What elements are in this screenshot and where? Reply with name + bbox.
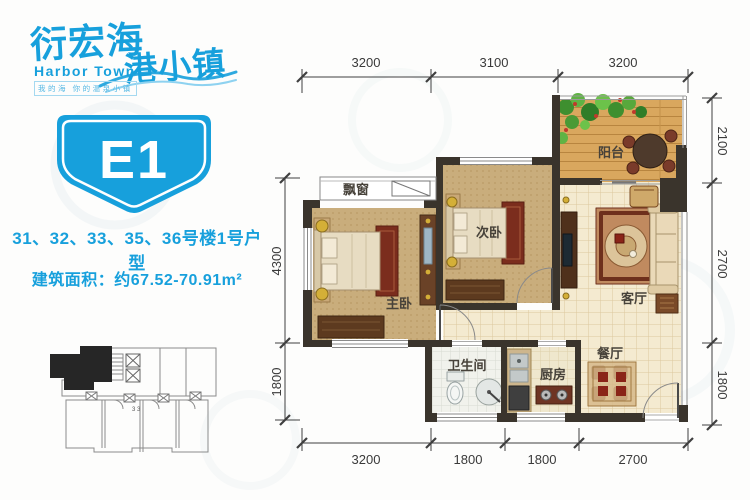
dining-set [588,362,636,406]
armchair [630,186,658,207]
dining-label: 餐厅 [596,346,623,361]
bathroom-label: 卫生间 [447,358,486,373]
dimension-top: 3200 3100 3200 [297,55,693,93]
dim-bottom-2: 1800 [454,452,483,467]
keyplan-highlighted-unit [50,346,112,390]
dim-left-1: 4300 [269,247,284,276]
bedroom2-dresser [446,280,504,300]
logo-tagline: 我的海 你的温泉小镇 [34,81,137,96]
dim-top-2: 3100 [480,55,509,70]
unit-code: E1 [99,130,169,190]
dim-bottom-4: 2700 [619,452,648,467]
living-rug [596,208,656,284]
sofa [648,204,678,294]
dimension-left: 4300 1800 [269,173,300,425]
logo-english: Harbor Town [34,63,136,79]
kitchen-label: 厨房 [540,367,566,382]
side-rack [656,294,678,313]
baywindow-label: 飘窗 [343,182,369,197]
dim-left-2: 1800 [269,368,284,397]
dim-top-3: 3200 [609,55,638,70]
dim-right-2: 2700 [715,250,730,279]
hallway-floor [443,310,560,340]
floorplan-poster: 飘窗 阳台 次卧 主卧 客厅 餐厅 厨房 卫生间 3 [0,0,750,500]
dim-right-3: 1800 [715,371,730,400]
dim-top-1: 3200 [352,55,381,70]
master-wardrobe [420,215,436,305]
unit-badge: E1 [50,112,218,216]
balcony-label: 阳台 [598,145,624,160]
dimension-bottom: 3200 1800 1800 2700 [297,428,693,467]
tv-cabinet [561,197,577,299]
area-line: 建筑面积：约67.52-70.91m² [8,266,266,290]
master-dresser [318,316,384,338]
bedroom2-label: 次卧 [476,225,502,240]
key-plan: 3 3 [28,336,233,471]
master-label: 主卧 [386,296,412,311]
dim-right-1: 2100 [715,127,730,156]
dim-bottom-3: 1800 [528,452,557,467]
keyplan-note: 3 3 [132,407,141,413]
bay-window: 飘窗 [320,177,436,200]
dim-bottom-1: 3200 [352,452,381,467]
living-label: 客厅 [621,291,647,306]
